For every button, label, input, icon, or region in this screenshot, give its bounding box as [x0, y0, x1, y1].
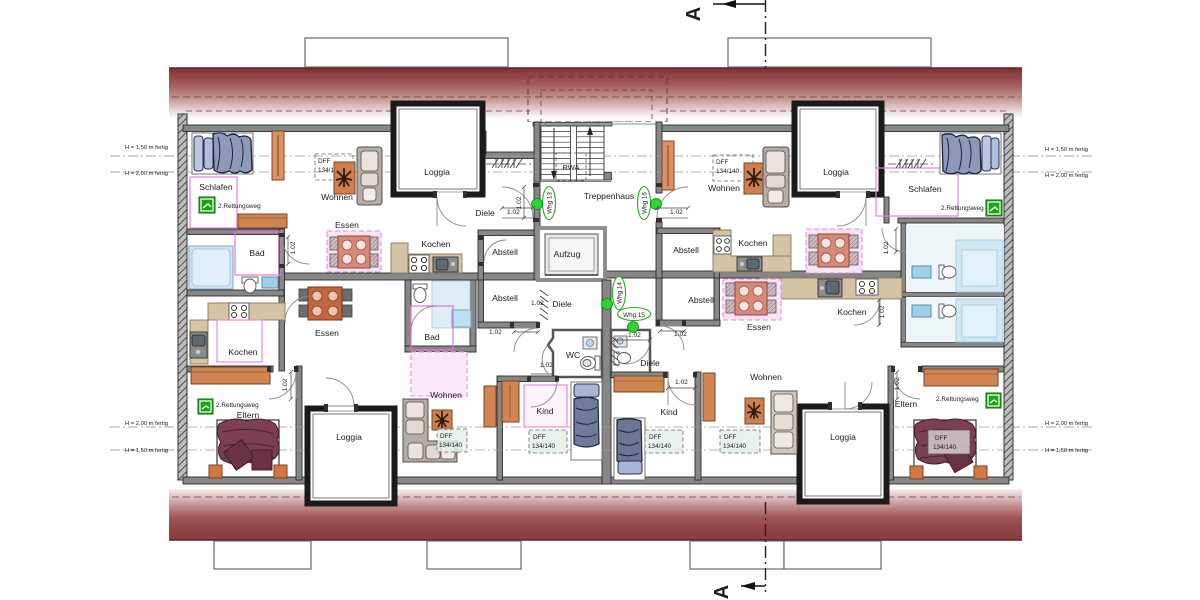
svg-text:H = 1,50 m fertig: H = 1,50 m fertig — [1045, 147, 1088, 153]
svg-text:Abstell: Abstell — [492, 293, 518, 303]
svg-text:Aufzug: Aufzug — [554, 249, 581, 259]
svg-text:134/140: 134/140 — [933, 444, 957, 451]
svg-text:134/140: 134/140 — [439, 442, 463, 449]
svg-text:Eltern: Eltern — [895, 399, 918, 409]
svg-text:Essen: Essen — [335, 220, 359, 230]
svg-text:Wohnen: Wohnen — [430, 390, 462, 400]
svg-text:DFF: DFF — [533, 434, 546, 441]
svg-text:1.02: 1.02 — [540, 362, 553, 369]
svg-text:1.02: 1.02 — [674, 331, 687, 338]
svg-text:Essen: Essen — [747, 322, 771, 332]
svg-text:DFF: DFF — [318, 158, 331, 165]
svg-text:Bad: Bad — [424, 332, 440, 342]
svg-text:Abstell: Abstell — [673, 245, 699, 255]
svg-text:2.Rettungsweg: 2.Rettungsweg — [941, 205, 984, 212]
svg-text:1.02: 1.02 — [883, 241, 890, 254]
svg-text:DFF: DFF — [649, 434, 662, 441]
svg-text:1.02: 1.02 — [516, 196, 523, 209]
svg-text:134/140: 134/140 — [532, 443, 556, 450]
svg-text:RWA: RWA — [562, 163, 579, 172]
svg-text:134/140: 134/140 — [648, 443, 672, 450]
svg-text:1.02: 1.02 — [290, 241, 297, 254]
svg-text:Kochen: Kochen — [738, 238, 767, 248]
svg-text:Bad: Bad — [249, 248, 265, 258]
svg-text:2.Rettungsweg: 2.Rettungsweg — [216, 402, 259, 409]
svg-text:Wohnen: Wohnen — [321, 192, 353, 202]
svg-text:1.02: 1.02 — [675, 379, 688, 386]
svg-text:H = 2,00 m fertig: H = 2,00 m fertig — [125, 421, 168, 427]
svg-text:1.02: 1.02 — [879, 305, 886, 318]
svg-text:1.02: 1.02 — [282, 378, 289, 391]
svg-text:Whg 14: Whg 14 — [617, 282, 624, 304]
svg-text:H = 2,00 m fertig: H = 2,00 m fertig — [1045, 421, 1088, 427]
svg-text:DFF: DFF — [716, 159, 729, 166]
svg-text:Diele: Diele — [640, 358, 660, 368]
svg-text:DFF: DFF — [935, 435, 948, 442]
svg-text:H = 1,50 m fertig: H = 1,50 m fertig — [125, 448, 168, 454]
svg-text:Diele: Diele — [552, 299, 572, 309]
svg-text:Essen: Essen — [315, 328, 339, 338]
svg-text:134/140: 134/140 — [716, 168, 740, 175]
svg-text:1.02: 1.02 — [670, 209, 683, 216]
svg-text:H = 1,50 m fertig: H = 1,50 m fertig — [1045, 448, 1088, 454]
svg-text:Kochen: Kochen — [837, 307, 866, 317]
svg-text:H = 2,00 m fertig: H = 2,00 m fertig — [1045, 173, 1088, 179]
svg-text:Loggia: Loggia — [424, 167, 450, 177]
svg-text:Kind: Kind — [660, 407, 677, 417]
svg-text:Kind: Kind — [536, 406, 553, 416]
svg-text:Treppenhaus: Treppenhaus — [584, 191, 634, 201]
svg-text:DFF: DFF — [724, 434, 737, 441]
svg-text:Wohnen: Wohnen — [708, 183, 740, 193]
svg-text:WC: WC — [566, 350, 580, 360]
svg-text:Abstell: Abstell — [492, 247, 518, 257]
svg-text:Loggia: Loggia — [830, 432, 856, 442]
svg-text:1.02: 1.02 — [628, 332, 641, 339]
svg-text:Whg 15: Whg 15 — [623, 312, 645, 319]
svg-text:A: A — [711, 585, 733, 599]
svg-text:Wohnen: Wohnen — [750, 372, 782, 382]
svg-text:Schlafen: Schlafen — [199, 182, 233, 192]
svg-text:H = 1,50 m fertig: H = 1,50 m fertig — [125, 145, 168, 151]
svg-text:Schlafen: Schlafen — [908, 184, 942, 194]
svg-text:1.02: 1.02 — [894, 377, 901, 390]
svg-text:Whg 16: Whg 16 — [642, 192, 649, 214]
svg-text:2.Rettungsweg: 2.Rettungsweg — [936, 396, 979, 403]
svg-text:Kochen: Kochen — [228, 347, 257, 357]
svg-text:1.02: 1.02 — [531, 300, 544, 307]
svg-text:Loggia: Loggia — [823, 167, 849, 177]
svg-text:1.02: 1.02 — [489, 329, 502, 336]
svg-text:H = 2,00 m fertig: H = 2,00 m fertig — [125, 171, 168, 177]
svg-text:Abstell: Abstell — [688, 295, 714, 305]
svg-text:134/140: 134/140 — [723, 443, 747, 450]
svg-text:Eltern: Eltern — [237, 410, 260, 420]
svg-text:Kochen: Kochen — [421, 239, 450, 249]
svg-text:Whg 13: Whg 13 — [547, 192, 554, 214]
svg-text:A: A — [683, 7, 705, 21]
svg-text:Loggia: Loggia — [336, 432, 362, 442]
svg-text:2.Rettungsweg: 2.Rettungsweg — [218, 203, 261, 210]
svg-text:DFF: DFF — [440, 433, 453, 440]
svg-text:Diele: Diele — [475, 208, 495, 218]
